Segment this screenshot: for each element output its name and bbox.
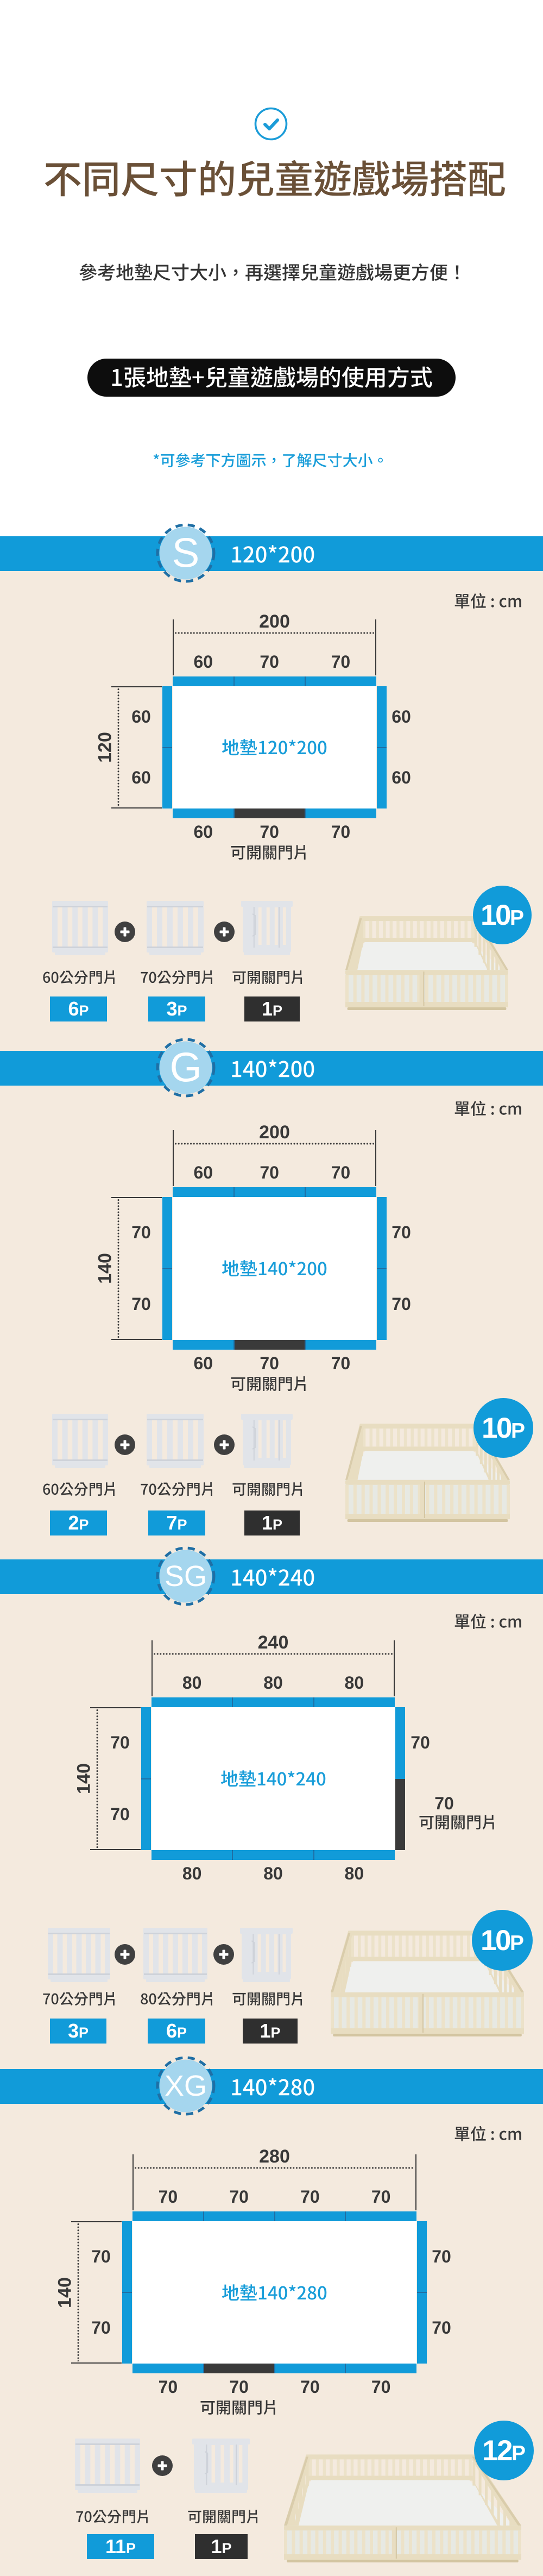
svg-text:SG: SG <box>165 1560 207 1593</box>
svg-text:XG: XG <box>165 2070 207 2102</box>
svg-text:S: S <box>172 530 200 576</box>
svg-text:G: G <box>169 1045 201 1091</box>
